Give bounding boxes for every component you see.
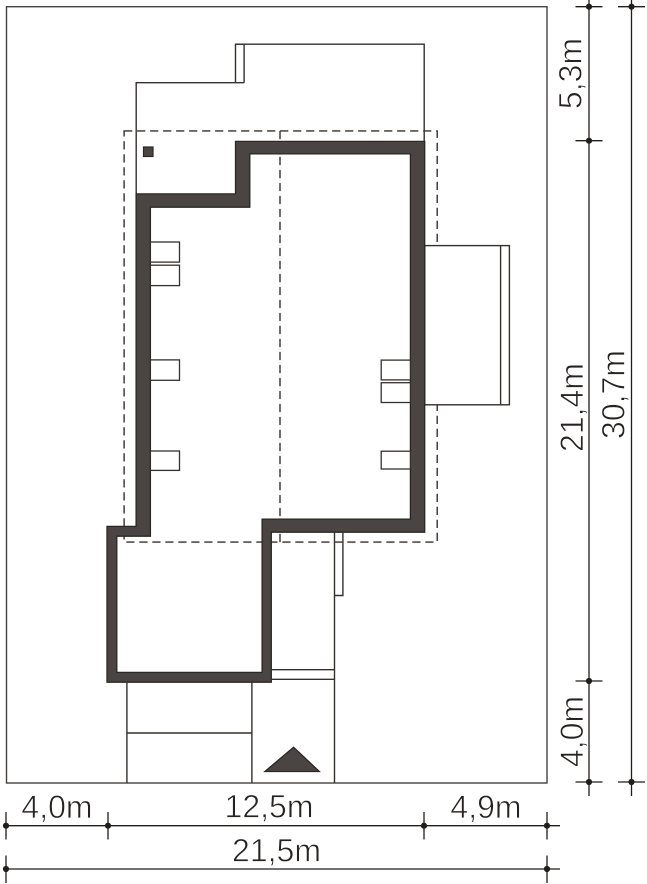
svg-text:21,4m: 21,4m <box>554 363 590 452</box>
svg-text:12,5m: 12,5m <box>225 789 314 825</box>
svg-text:4,9m: 4,9m <box>450 789 521 825</box>
svg-text:4,0m: 4,0m <box>554 696 590 767</box>
svg-text:30,7m: 30,7m <box>596 350 632 439</box>
svg-text:21,5m: 21,5m <box>232 833 321 869</box>
svg-text:5,3m: 5,3m <box>553 38 589 109</box>
svg-text:4,0m: 4,0m <box>21 789 92 825</box>
